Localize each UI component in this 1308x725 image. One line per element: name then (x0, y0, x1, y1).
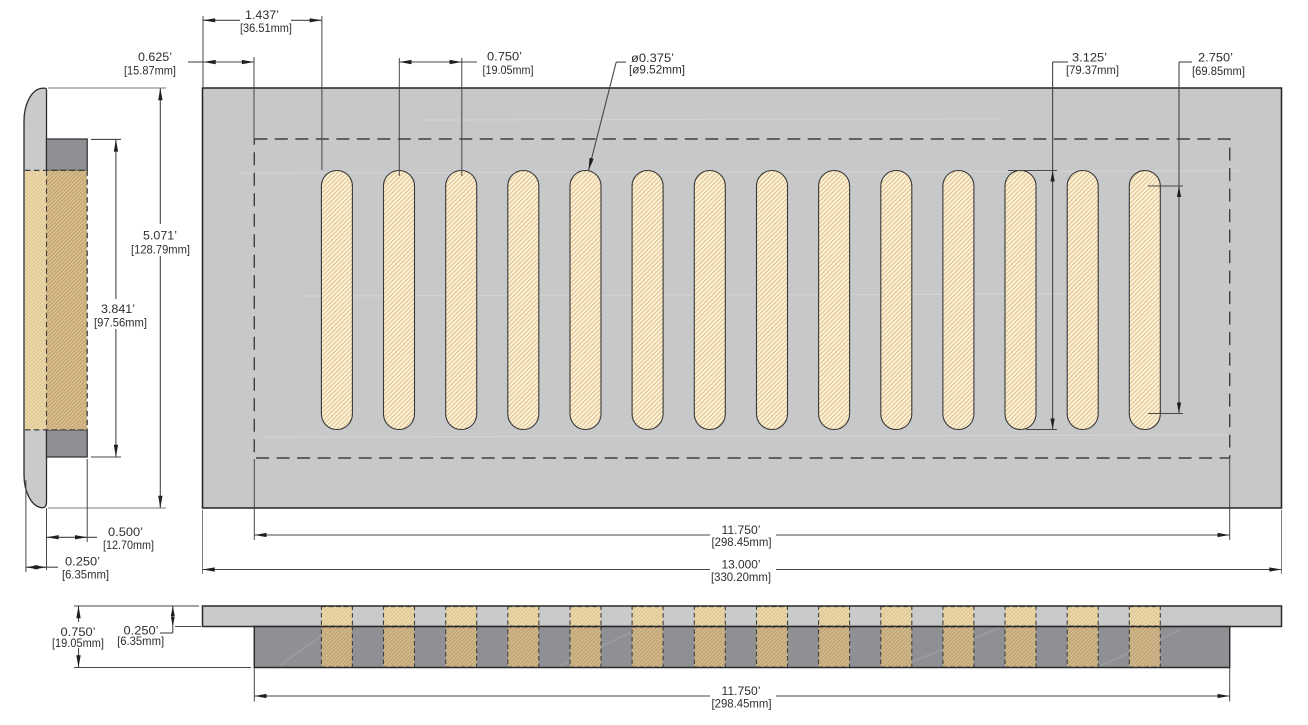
svg-text:0.500’: 0.500’ (108, 525, 143, 539)
svg-text:[330.20mm]: [330.20mm] (711, 571, 771, 584)
svg-text:0.250’: 0.250’ (65, 555, 100, 569)
svg-text:3.841’: 3.841’ (101, 302, 135, 316)
svg-text:[298.45mm]: [298.45mm] (712, 697, 772, 710)
svg-text:[298.45mm]: [298.45mm] (712, 536, 772, 549)
svg-text:[69.85mm]: [69.85mm] (1192, 65, 1245, 78)
svg-text:[6.35mm]: [6.35mm] (117, 635, 164, 648)
svg-text:[19.05mm]: [19.05mm] (483, 64, 534, 77)
svg-text:3.125’: 3.125’ (1072, 51, 1107, 65)
svg-text:2.750’: 2.750’ (1198, 51, 1233, 65)
svg-text:[15.87mm]: [15.87mm] (124, 65, 176, 78)
svg-text:11.750’: 11.750’ (722, 684, 761, 698)
svg-text:[79.37mm]: [79.37mm] (1066, 64, 1119, 77)
svg-text:0.750’: 0.750’ (487, 50, 522, 64)
svg-text:13.000’: 13.000’ (722, 558, 761, 572)
svg-text:[36.51mm]: [36.51mm] (240, 22, 292, 35)
svg-text:[6.35mm]: [6.35mm] (62, 569, 109, 582)
svg-text:[19.05mm]: [19.05mm] (52, 637, 104, 650)
svg-text:11.750’: 11.750’ (722, 523, 761, 537)
svg-text:[12.70mm]: [12.70mm] (103, 539, 154, 552)
svg-text:[97.56mm]: [97.56mm] (94, 317, 147, 330)
svg-text:1.437’: 1.437’ (245, 8, 279, 22)
svg-text:0.625’: 0.625’ (138, 50, 172, 64)
svg-text:[ø9.52mm]: [ø9.52mm] (629, 64, 685, 77)
svg-text:5.071’: 5.071’ (143, 229, 177, 243)
svg-text:[128.79mm]: [128.79mm] (131, 244, 190, 257)
